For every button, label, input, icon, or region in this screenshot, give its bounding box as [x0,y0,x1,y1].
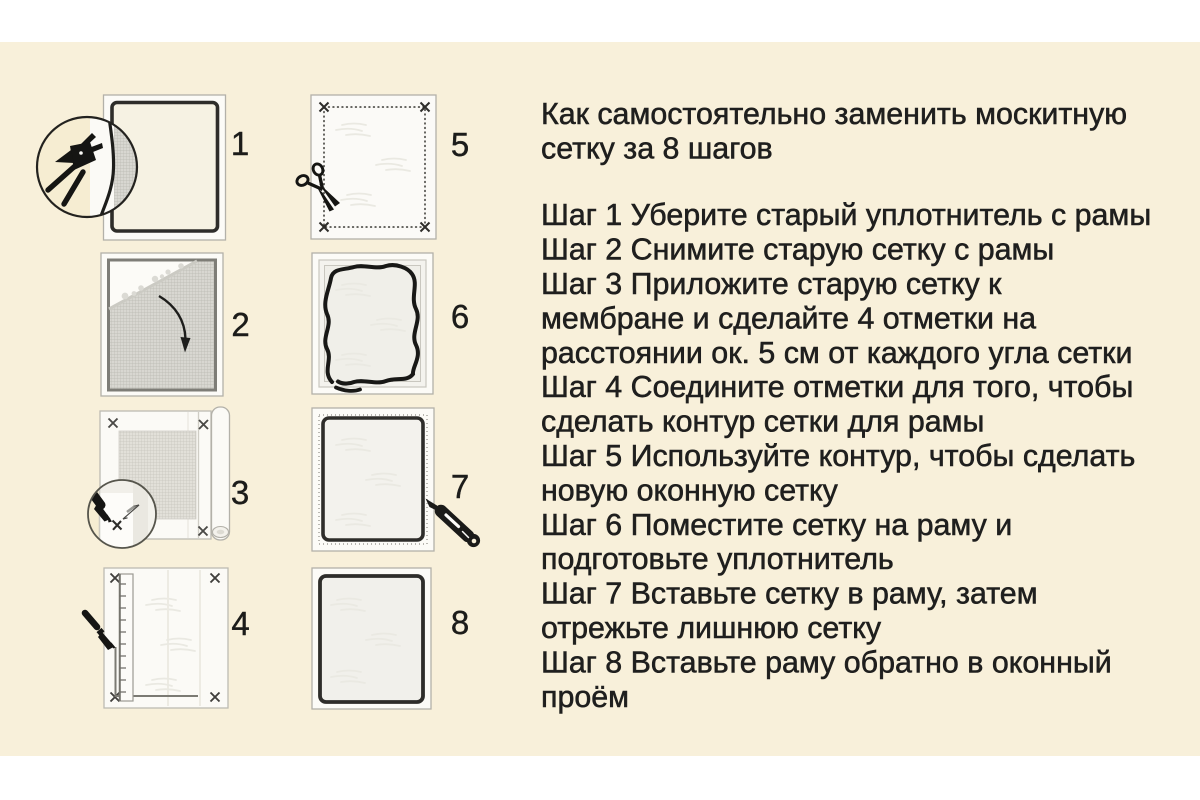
svg-text:2: 2 [231,306,249,343]
svg-text:расстоянии ок. 5 см от каждого: расстоянии ок. 5 см от каждого угла сетк… [541,336,1132,370]
svg-text:7: 7 [451,468,469,505]
svg-text:сетку за 8 шагов: сетку за 8 шагов [541,131,773,165]
svg-text:мембране и сделайте 4 отметки: мембране и сделайте 4 отметки на [541,301,1036,335]
svg-text:сделать контур сетки для рамы: сделать контур сетки для рамы [541,405,984,439]
svg-text:1: 1 [231,125,249,162]
svg-text:6: 6 [451,298,469,335]
svg-text:подготовьте уплотнитель: подготовьте уплотнитель [541,542,894,576]
svg-text:8: 8 [451,604,469,641]
svg-text:проём: проём [541,680,629,714]
svg-text:4: 4 [231,605,249,642]
svg-text:Шаг 3 Приложите старую сетку к: Шаг 3 Приложите старую сетку к [541,267,1002,301]
svg-text:Шаг 1 Уберите старый уплотните: Шаг 1 Уберите старый уплотнитель с рамы [541,198,1151,232]
svg-text:Шаг 7 Вставьте сетку в раму, з: Шаг 7 Вставьте сетку в раму, затем [541,577,1038,611]
svg-text:Шаг 2 Снимите старую сетку с р: Шаг 2 Снимите старую сетку с рамы [541,233,1054,267]
svg-text:отрежьте лишнюю сетку: отрежьте лишнюю сетку [541,611,882,645]
svg-text:3: 3 [231,474,249,511]
svg-text:новую оконную сетку: новую оконную сетку [541,473,839,507]
svg-text:Шаг 8 Вставьте раму обратно в: Шаг 8 Вставьте раму обратно в оконный [541,645,1112,679]
svg-text:5: 5 [451,126,469,163]
svg-text:Шаг 6 Поместите сетку на раму: Шаг 6 Поместите сетку на раму и [541,508,1012,542]
svg-text:Как самостоятельно заменить мо: Как самостоятельно заменить москитную [541,97,1127,131]
svg-text:Шаг 4 Соедините отметки для то: Шаг 4 Соедините отметки для того, чтобы [541,370,1133,404]
svg-text:Шаг 5 Используйте контур, чтоб: Шаг 5 Используйте контур, чтобы сделать [541,439,1135,473]
